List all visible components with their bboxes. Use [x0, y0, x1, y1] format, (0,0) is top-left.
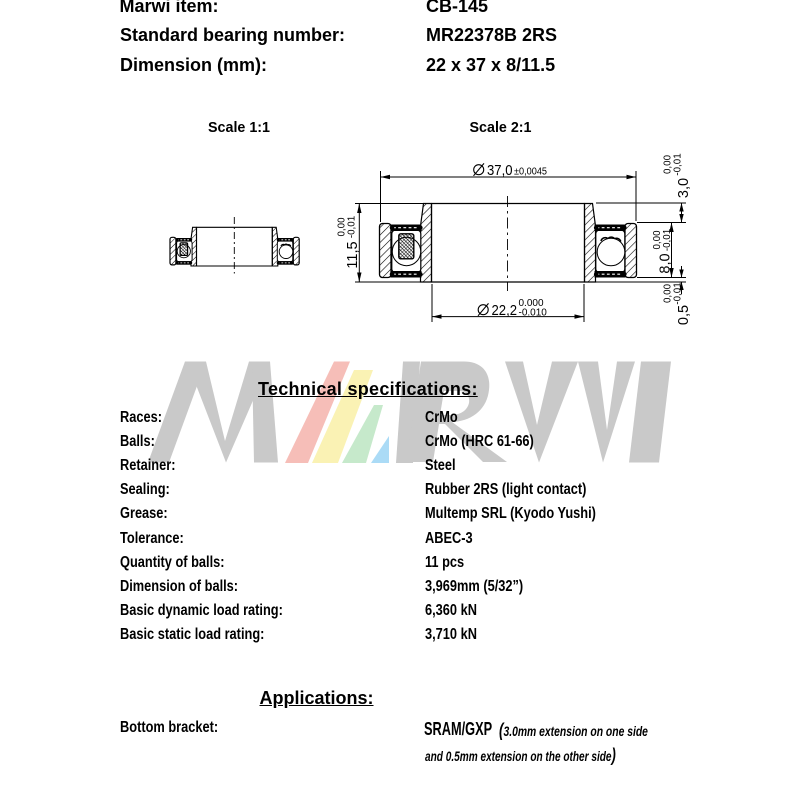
- svg-text:0,5: 0,5: [676, 305, 692, 325]
- svg-text:-0,01: -0,01: [662, 229, 673, 251]
- svg-text:8,0: 8,0: [658, 253, 674, 273]
- svg-text:37,0: 37,0: [487, 162, 513, 179]
- svg-text:22,2: 22,2: [492, 302, 518, 319]
- svg-text:3,0: 3,0: [676, 178, 692, 198]
- svg-text:±0,0045: ±0,0045: [514, 167, 547, 178]
- svg-text:-0,01: -0,01: [673, 153, 684, 175]
- svg-text:11,5: 11,5: [345, 241, 361, 268]
- svg-text:-0,01: -0,01: [347, 216, 358, 238]
- svg-text:-0.010: -0.010: [519, 308, 548, 319]
- svg-text:-0,01: -0,01: [673, 282, 684, 304]
